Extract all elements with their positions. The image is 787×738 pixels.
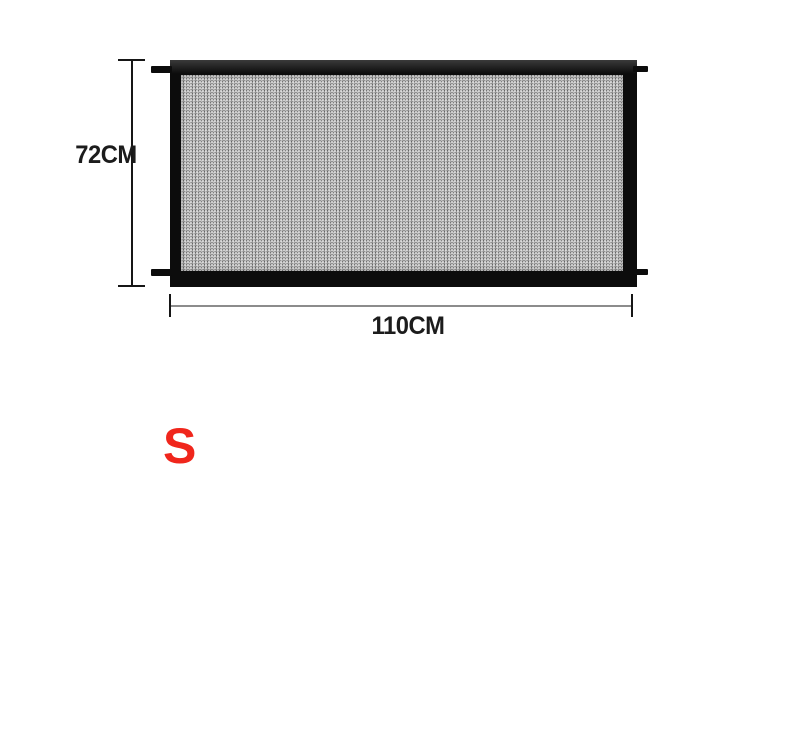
width-dimension-tick-right xyxy=(631,294,633,317)
hinge-tab-top-left xyxy=(151,66,172,73)
gate-mesh xyxy=(181,75,623,271)
product-diagram: 72CM 110CM S xyxy=(0,0,787,738)
hinge-tab-bottom-left xyxy=(151,269,172,276)
height-dimension-cap-top xyxy=(118,59,145,61)
hinge-tab-bottom-right xyxy=(633,269,648,275)
width-dimension-label: 110CM xyxy=(346,312,470,341)
height-dimension-cap-bottom xyxy=(118,285,145,287)
height-dimension-line xyxy=(131,60,133,287)
hinge-tab-top-right xyxy=(633,66,648,72)
width-dimension-line xyxy=(170,305,632,307)
height-dimension-label: 72CM xyxy=(68,141,144,170)
width-dimension-tick-left xyxy=(169,294,171,317)
gate-frame xyxy=(170,60,637,287)
size-option-label: S xyxy=(163,421,196,471)
